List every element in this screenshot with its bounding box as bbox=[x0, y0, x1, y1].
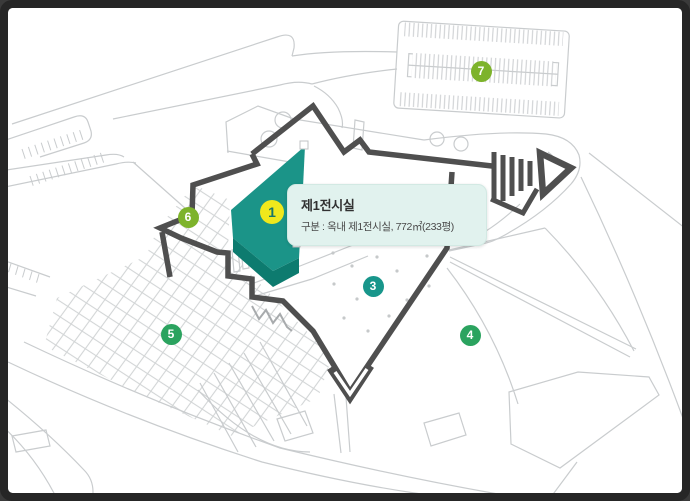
area-marker-6[interactable]: 6 bbox=[178, 207, 199, 228]
area-marker-3[interactable]: 3 bbox=[363, 276, 384, 297]
tooltip-title: 제1전시실 bbox=[301, 195, 473, 214]
site-map-canvas: 134567 제1전시실 구분 : 옥내 제1전시실, 772㎡(233평) bbox=[8, 8, 682, 493]
tooltip-description: 구분 : 옥내 제1전시실, 772㎡(233평) bbox=[301, 219, 473, 234]
area-marker-5[interactable]: 5 bbox=[161, 324, 182, 345]
area-marker-1[interactable]: 1 bbox=[260, 200, 284, 224]
map-background bbox=[8, 8, 682, 493]
building-tooltip: 제1전시실 구분 : 옥내 제1전시실, 772㎡(233평) bbox=[287, 184, 487, 246]
area-marker-4[interactable]: 4 bbox=[460, 325, 481, 346]
site-map-drawing bbox=[8, 8, 682, 493]
facility-map: 134567 제1전시실 구분 : 옥내 제1전시실, 772㎡(233평) bbox=[0, 0, 690, 501]
area-marker-7[interactable]: 7 bbox=[471, 61, 492, 82]
